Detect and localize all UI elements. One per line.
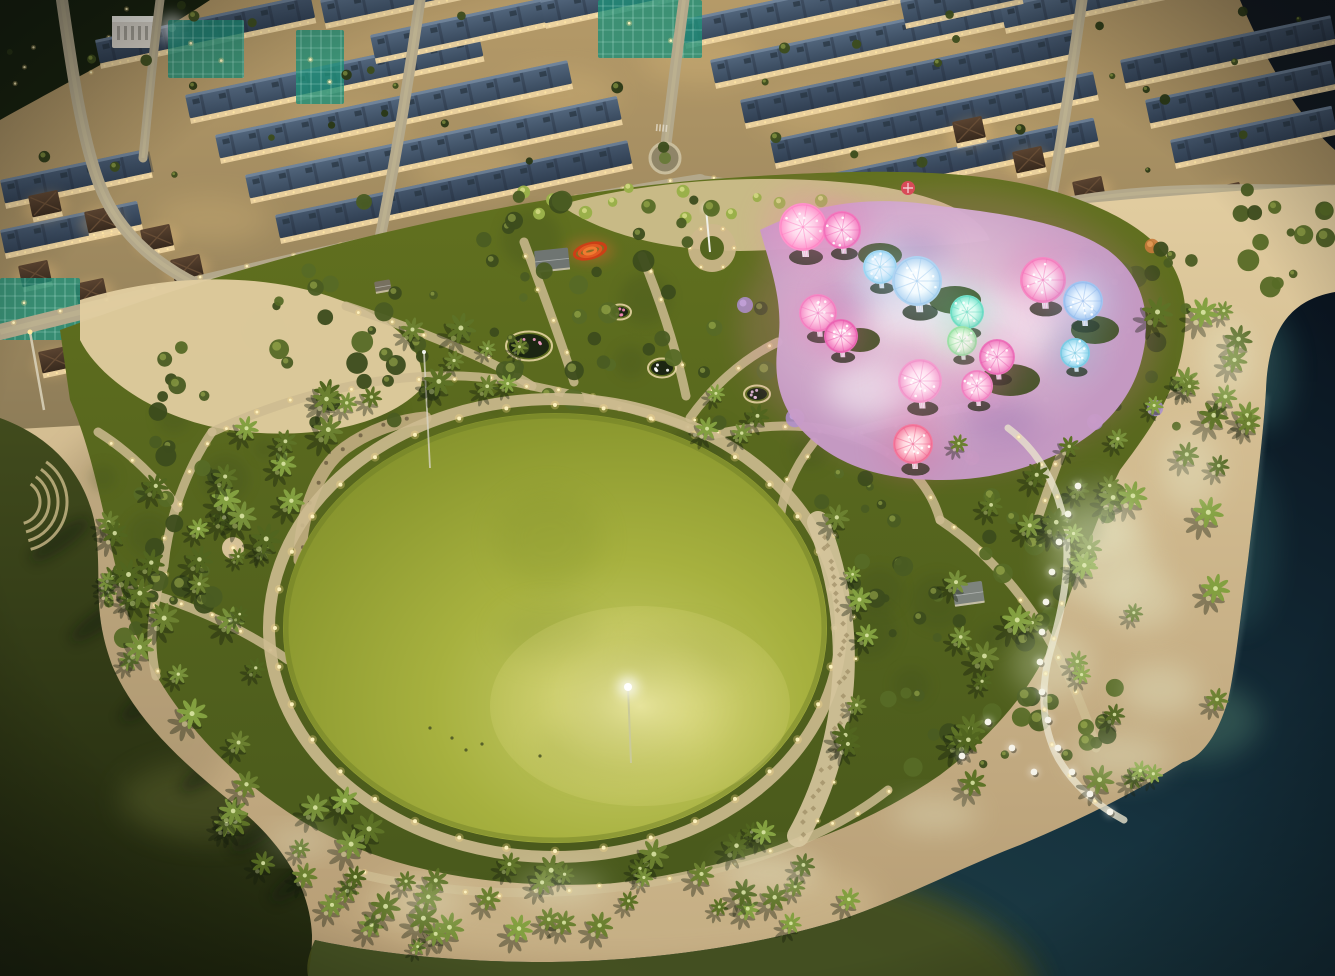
vignette-overlay <box>0 0 1335 976</box>
vignette <box>0 0 1335 976</box>
aerial-night-photo <box>0 0 1335 976</box>
photo-canvas <box>0 0 1335 976</box>
